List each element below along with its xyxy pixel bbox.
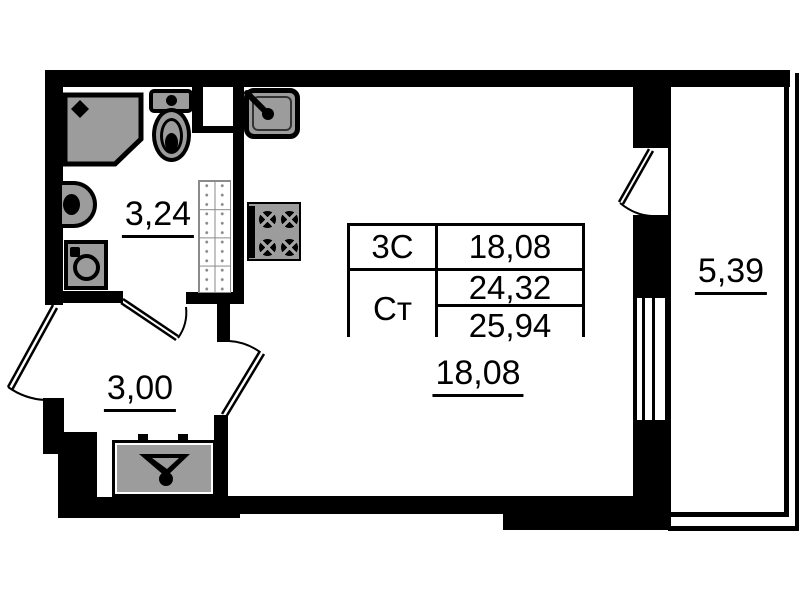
balcony-bottom-inner-line (668, 512, 789, 517)
bathroom-door (121, 299, 186, 340)
shower (65, 95, 141, 164)
entrance-door (8, 305, 57, 400)
kitchen-sink-drain (262, 108, 274, 120)
wall-hall-bottom (58, 497, 240, 518)
balcony-door (619, 149, 656, 216)
wall-vent-stub-vertical (192, 87, 203, 131)
stove-burner (259, 211, 276, 228)
plan-code-cell: 3С (350, 226, 435, 268)
living-room-area-label: 18,08 (432, 355, 523, 397)
wardrobe (112, 440, 216, 497)
toilet-button (166, 95, 177, 106)
unit-type-cell: Ст (350, 271, 435, 345)
wardrobe-hinge (138, 434, 148, 441)
wall-room-bottom-left (228, 496, 503, 514)
shelf-unit (198, 180, 231, 293)
wall-hall-room-upper (217, 304, 230, 342)
wall-bathroom-right (233, 87, 244, 303)
area-without-balcony-cell: 24,32 (438, 271, 582, 304)
washbasin-drain (63, 194, 80, 215)
wall-hall-room-lower (214, 415, 228, 498)
floor-plan: 3,24 3,00 18,08 5,39 3С 18,08 Ст 24,32 2… (0, 0, 799, 600)
wall-entry-step-3 (58, 454, 97, 500)
bathroom-area-label: 3,24 (122, 196, 194, 238)
apartment-info-table: 3С 18,08 Ст 24,32 25,94 (347, 223, 585, 337)
living-room-door (222, 341, 264, 417)
wall-top (45, 70, 790, 87)
hallway-area-label: 3,00 (104, 370, 176, 412)
living-area-cell: 18,08 (438, 226, 582, 268)
stove-burner (259, 239, 276, 256)
balcony-window (633, 298, 669, 420)
wall-right-lower (633, 420, 670, 530)
wall-right-mid (633, 215, 670, 298)
balcony-bottom-outer-line (668, 526, 799, 531)
wardrobe-hinge (178, 434, 188, 441)
wall-vent-stub-horizontal (192, 126, 236, 133)
total-area-cell: 25,94 (438, 307, 582, 345)
balcony-right-outer-line (795, 73, 799, 531)
wall-entry-step-2 (43, 432, 97, 454)
stove-back-edge (247, 206, 255, 258)
toilet-drain (165, 133, 178, 152)
balcony-area-label: 5,39 (695, 253, 767, 295)
balcony-right-inner-line (784, 85, 789, 517)
shower-head-icon (71, 100, 89, 118)
wall-entry-step-1 (43, 398, 64, 432)
wall-bathroom-bottom-left (45, 291, 123, 303)
wall-right-upper (633, 85, 670, 148)
stove-burner (281, 211, 298, 228)
washing-machine-drum (73, 254, 100, 281)
stove-burner (281, 239, 298, 256)
